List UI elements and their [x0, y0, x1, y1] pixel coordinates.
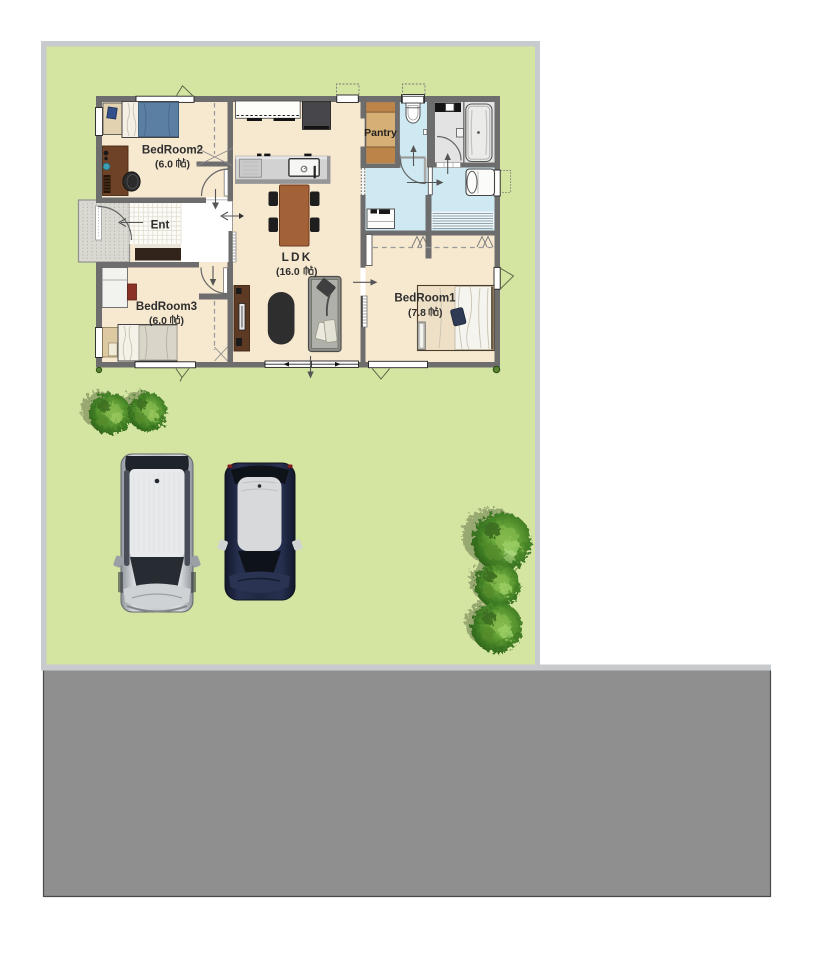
svg-text:BedRoom3: BedRoom3	[136, 300, 198, 313]
svg-text:): )	[187, 160, 190, 171]
svg-text:Ent: Ent	[151, 219, 170, 232]
svg-text:): )	[181, 316, 184, 327]
svg-text:(7.8: (7.8	[408, 308, 426, 319]
svg-text:(16.0: (16.0	[276, 267, 300, 278]
svg-text:): )	[439, 308, 442, 319]
svg-text:BedRoom1: BedRoom1	[394, 292, 456, 305]
svg-text:BedRoom2: BedRoom2	[142, 144, 203, 157]
svg-text:(6.0: (6.0	[155, 160, 173, 171]
svg-text:(6.0: (6.0	[149, 316, 167, 327]
svg-text:LDK: LDK	[282, 250, 313, 264]
svg-text:): )	[314, 267, 317, 278]
svg-text:Pantry: Pantry	[364, 127, 397, 139]
